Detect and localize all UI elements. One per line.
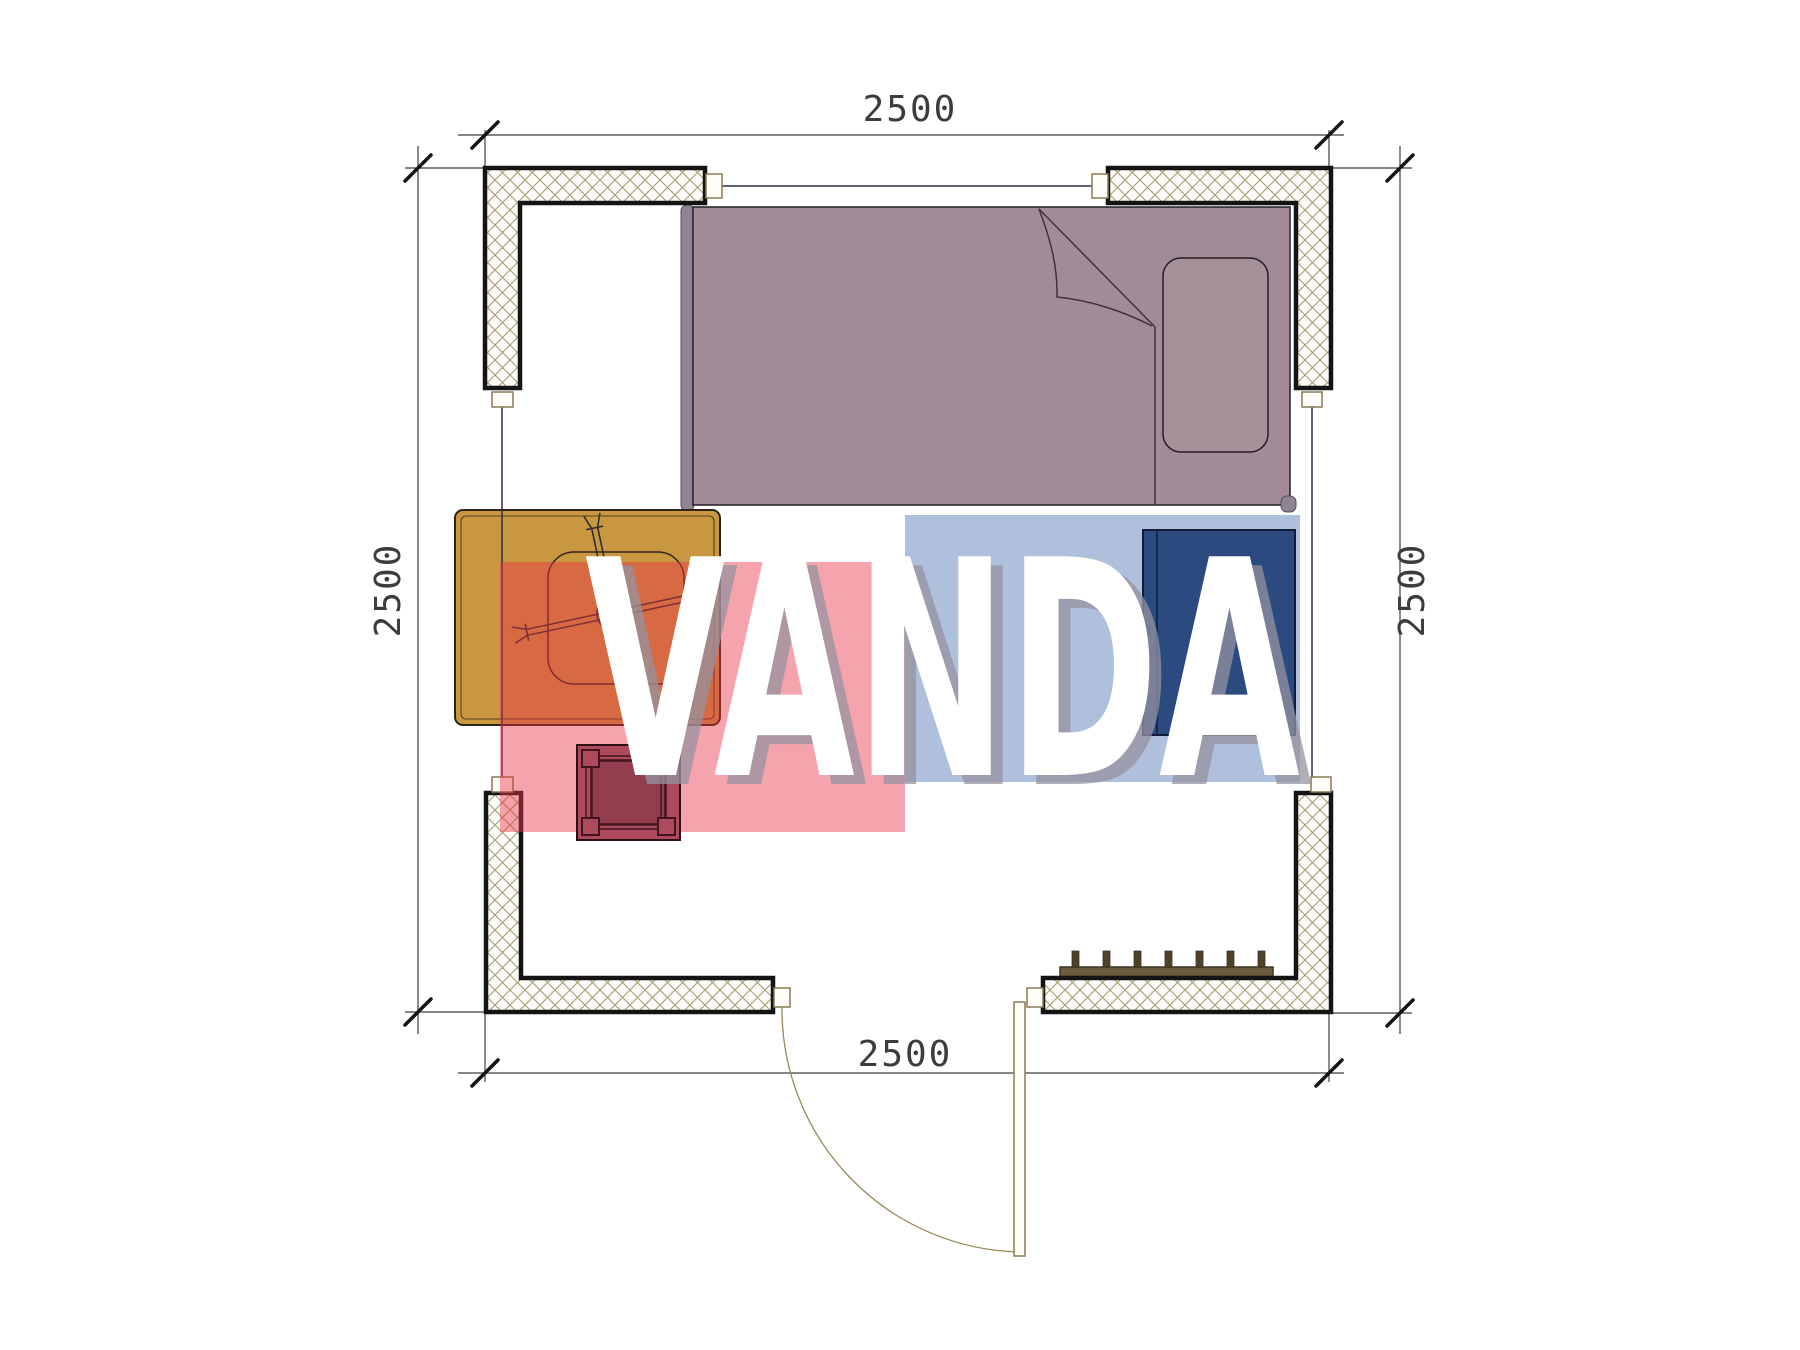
connector <box>1302 392 1322 407</box>
connector <box>1027 988 1043 1007</box>
floor-plan-canvas: 2500 2500 2500 2500 <box>0 0 1800 1350</box>
door-leaf <box>1014 1002 1025 1256</box>
wall-top-left <box>485 168 705 388</box>
bed-side-rail <box>681 205 694 511</box>
dimension-label-bottom: 2500 <box>858 1034 953 1075</box>
watermark-text: VANDA <box>585 497 1301 846</box>
connector <box>1092 174 1108 198</box>
radiator-fins <box>1072 951 1265 967</box>
pillow <box>1163 258 1268 452</box>
dimension-label-right: 2500 <box>1392 543 1433 638</box>
dimension-label-top: 2500 <box>863 89 958 130</box>
connector <box>1311 777 1331 792</box>
connector <box>774 988 790 1007</box>
connector <box>706 174 722 198</box>
dimension-label-left: 2500 <box>368 543 409 638</box>
radiator <box>1060 951 1273 980</box>
floor-plan-drawing: 2500 2500 2500 2500 <box>0 0 1800 1350</box>
bed <box>681 205 1296 512</box>
connector <box>492 392 513 407</box>
